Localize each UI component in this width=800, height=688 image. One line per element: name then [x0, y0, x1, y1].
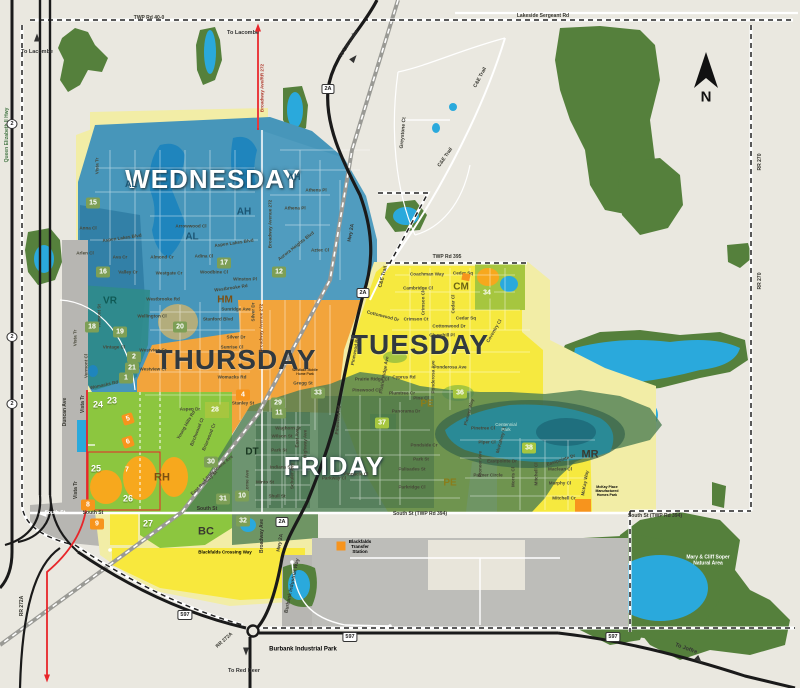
zone-number-marker: 7	[120, 465, 134, 476]
highway-shield: 2A	[275, 517, 288, 527]
zone-number-marker: 1	[119, 373, 133, 384]
road-label: Vista Tr	[81, 395, 87, 413]
area-code-label: AL	[125, 179, 137, 189]
street-label: Park St	[413, 456, 429, 461]
street-label: Cedar Cl	[450, 295, 455, 314]
facility-icon	[461, 273, 470, 282]
area-code-label: CM	[453, 281, 469, 293]
road-label: South St (TWP Rd 394)	[393, 512, 447, 518]
street-label: Adina Cl	[195, 253, 214, 258]
street-label: Westgate Cr	[156, 270, 183, 275]
street-label: Ponderosa Ave	[433, 364, 466, 369]
road-label: RR 270	[758, 154, 764, 171]
street-label: Wilson St	[272, 433, 293, 438]
road-label: South St	[197, 507, 218, 513]
street-label: Broadway Ave/RR 272	[259, 64, 264, 112]
street-label: Murphy Cl	[549, 480, 571, 485]
street-label: Pinewood Cl	[352, 387, 380, 392]
street-label: Valley Cr	[118, 269, 137, 274]
street-label: Sunrise Cl	[221, 344, 244, 349]
direction-label: To Lacombe	[21, 49, 53, 55]
street-label: Sunridge Ave	[221, 306, 250, 311]
street-label: Athena Pl	[284, 205, 305, 210]
street-label: Schuler Ave	[289, 463, 294, 489]
zone-number-marker: 30	[204, 457, 218, 468]
collection-schedule-map: WEDNESDAYTHURSDAYTUESDAYFRIDAY AHAHALALV…	[0, 0, 800, 688]
street-label: Piper Cl	[478, 439, 495, 444]
area-code-label: HM	[217, 294, 233, 306]
street-label: Lorne Ave	[244, 470, 249, 492]
zone-number-marker: 2	[127, 352, 141, 363]
street-label: Westview Cr	[139, 347, 166, 352]
road-label: TWP Rd 40-0	[134, 16, 164, 22]
street-label: Almond Cr	[150, 254, 173, 259]
direction-arrow-icon	[44, 675, 50, 686]
day-zone-label: TUESDAY	[351, 329, 489, 361]
street-label: Wellington Cl	[137, 313, 166, 318]
road-label: TWP Rd 395	[433, 255, 462, 261]
street-label: Ava Cr	[113, 254, 128, 259]
street-label: Vista Tr	[72, 330, 77, 347]
road-label: South St	[45, 511, 66, 517]
street-label: Minto St	[256, 479, 274, 484]
direction-label: To Red Deer	[228, 668, 260, 674]
area-code-label: BC	[198, 526, 214, 539]
road-label: Queen Elizabeth II Hwy	[5, 108, 11, 163]
street-label: Parkridge Cl	[398, 484, 425, 489]
landmark-label: McKay Place Manufactured Homes Park	[596, 485, 619, 497]
road-label: Lakeside Sergeant Rd	[517, 14, 569, 20]
zone-number-marker: 26	[121, 493, 135, 504]
street-label: Park St	[271, 447, 287, 452]
street-label: Morris Cl	[510, 467, 515, 487]
zone-number-marker: 15	[86, 198, 100, 209]
street-label: Westview Cr	[139, 366, 166, 371]
street-label: Crimson Cl	[420, 291, 425, 316]
zone-number-marker: 37	[375, 418, 389, 429]
street-label: Mitchell Cr	[552, 495, 575, 500]
zone-number-marker: 38	[522, 443, 536, 454]
street-label: Churchill Pl	[429, 332, 455, 337]
zone-number-marker: 31	[216, 494, 230, 505]
street-label: Cambridge Cl	[403, 285, 433, 290]
zone-number-marker: 9	[90, 519, 104, 530]
street-label: Vista Tr	[94, 158, 99, 175]
street-label: Ponderosa Ave	[430, 360, 435, 393]
zone-number-marker: 33	[311, 388, 325, 399]
area-code-label: RH	[154, 472, 170, 485]
street-label: Broadway Avenue 272	[258, 304, 263, 352]
landmark-label: Westlake Mobile Home Park	[292, 368, 318, 376]
landmark-label: Blackfalds Crossing Way	[198, 549, 252, 554]
zone-number-marker: 16	[96, 267, 110, 278]
zone-number-marker: 10	[235, 491, 249, 502]
street-label: Anna Cl	[79, 225, 96, 230]
highway-shield: 2A	[356, 288, 369, 298]
road-label: Broadway Ave	[260, 519, 266, 553]
area-code-label: AH	[288, 172, 301, 182]
street-label: Panorama Dr	[392, 408, 421, 413]
zone-number-marker: 19	[113, 327, 127, 338]
street-label: Plumtree Cr	[389, 390, 415, 395]
zone-number-marker: 20	[173, 322, 187, 333]
landmark-label: Centennial Park	[495, 422, 517, 432]
landmark-label: Mary & Cliff Soper Natural Area	[686, 555, 729, 567]
highway-shield: 597	[177, 610, 192, 620]
zone-number-marker: 11	[272, 408, 286, 419]
street-label: Westbrooke Rd	[146, 296, 180, 301]
landmark-label: Blackfalds Transfer Station	[349, 539, 372, 555]
zone-number-marker: 23	[105, 395, 119, 406]
street-label: Pinnacle Cl	[344, 471, 369, 476]
street-label: Woodbine Cl	[200, 269, 228, 274]
area-code-label: AL	[185, 231, 198, 243]
industrial-area-shapes	[282, 538, 628, 628]
street-label: Broadway Avenue 272	[267, 200, 272, 248]
highway-shield: 2A	[321, 84, 334, 94]
street-label: Shull St	[268, 493, 285, 498]
street-label: Pine Cl	[413, 395, 429, 400]
street-label: Eastpointe Dr	[487, 458, 517, 463]
street-label: Cottonwood Dr	[432, 323, 465, 328]
street-label: Vermont Cl	[83, 354, 88, 378]
street-label: Athens Pl	[305, 187, 326, 192]
area-code-label: VR	[103, 295, 117, 307]
area-code-label: DT	[245, 446, 258, 458]
compass-north-label: N	[701, 89, 712, 106]
zone-number-marker: 36	[453, 388, 467, 399]
road-label: South St (TWP Rd 394)	[628, 514, 682, 520]
zone-number-marker: 28	[208, 405, 222, 416]
street-label: Stanford Blvd	[203, 316, 233, 321]
zone-number-marker: 4	[236, 390, 250, 401]
street-label: Cedar Sq	[456, 315, 476, 320]
road-label: RR 270	[758, 273, 764, 290]
area-code-label: AH	[237, 206, 251, 218]
street-label: Crimson Ct	[404, 316, 429, 321]
zone-number-marker: 32	[236, 516, 250, 527]
street-label: Stanley St	[232, 400, 254, 405]
street-label: Winston Pl	[233, 276, 257, 281]
zone-number-marker: 27	[141, 518, 155, 529]
road-label: Vista Tr	[74, 481, 80, 499]
highway-shield: 2	[6, 332, 17, 342]
transfer-station-icon	[337, 542, 346, 551]
street-label: Coachman Way	[410, 271, 444, 276]
highway-shield: 2	[6, 119, 17, 129]
street-label: Parkway Cl	[322, 475, 347, 480]
street-label: Palisades St	[398, 466, 425, 471]
street-label: Vintage Cl	[103, 344, 125, 349]
zone-number-marker: 8	[81, 500, 95, 511]
street-label: Pondside Cr	[410, 442, 437, 447]
landmark-label: Burbank Industrial Park	[269, 647, 337, 654]
zone-number-marker: 17	[217, 258, 231, 269]
zone-number-marker: 25	[89, 463, 103, 474]
highway-shield: 597	[342, 632, 357, 642]
zone-number-marker: 12	[272, 267, 286, 278]
zone-number-marker: 24	[91, 399, 105, 410]
street-label: Silver Dr	[227, 334, 246, 339]
highway-shield: 2	[6, 399, 17, 409]
street-label: Gregg St	[293, 380, 312, 385]
direction-arrow-icon	[255, 21, 261, 32]
street-label: Silver Dr	[250, 303, 255, 322]
street-label: Highway Ave	[302, 430, 307, 458]
road-label: Duncan Ave	[63, 398, 69, 427]
street-label: Mitchell Cl	[533, 463, 538, 486]
street-label: Womacks Rd	[218, 374, 247, 379]
street-label: Prairie Ridge Cl	[355, 376, 389, 381]
street-label: Arrowwood Cl	[175, 223, 206, 228]
street-label: Maclean Cl	[548, 466, 572, 471]
zone-number-marker: 34	[480, 288, 494, 299]
direction-arrow-icon	[36, 511, 47, 517]
area-code-label: PE	[443, 477, 456, 489]
street-label: Arlen Cl	[76, 250, 94, 255]
road-label: RR 272A	[20, 596, 26, 617]
highway-shield: 597	[605, 632, 620, 642]
zone-number-marker: 18	[85, 322, 99, 333]
street-label: Aztec Cl	[311, 247, 329, 252]
street-label: Palmer Circle	[473, 472, 502, 477]
direction-arrow-icon	[34, 31, 40, 42]
street-label: East Ave	[294, 428, 299, 447]
area-code-label: MR	[581, 449, 598, 462]
day-zone-label: WEDNESDAY	[125, 165, 301, 195]
direction-arrow-icon	[243, 648, 249, 659]
street-label: Pinetree Cl	[471, 425, 495, 430]
street-label: Cyprus Rd	[392, 374, 415, 379]
road-label: South St	[83, 511, 104, 517]
